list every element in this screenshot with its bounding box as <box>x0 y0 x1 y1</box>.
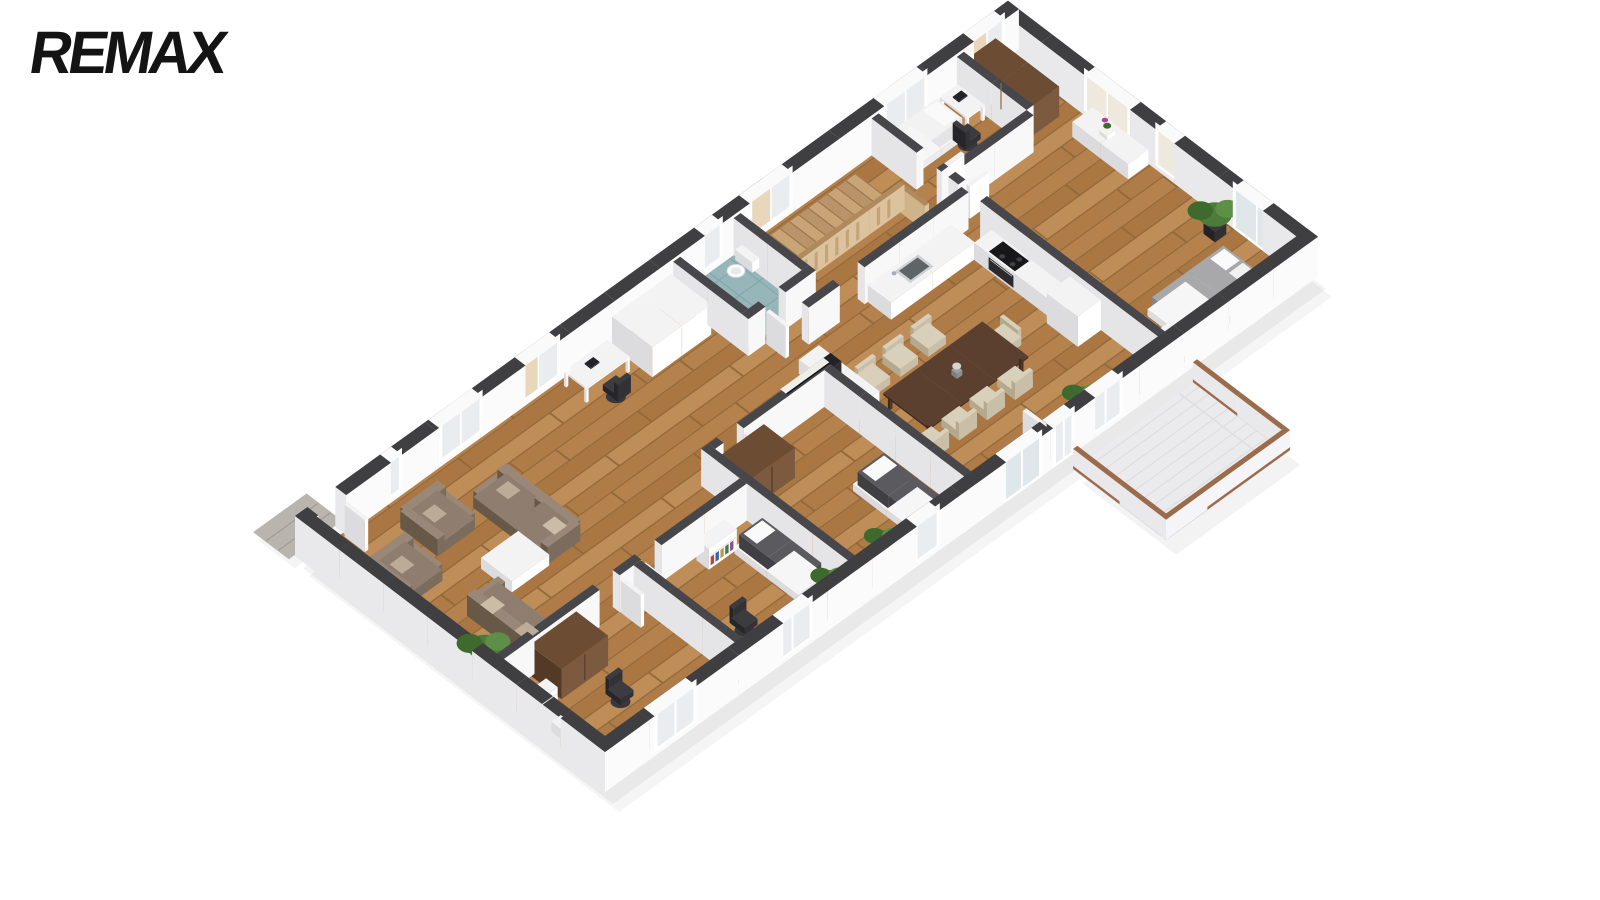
wall-dining-north <box>802 302 809 344</box>
desk-small-bedroom <box>980 107 982 122</box>
kitchen-counter-long <box>1016 257 1022 261</box>
exterior-wall-nw <box>335 487 346 535</box>
window-bedroom-b <box>792 614 794 650</box>
stair-railing <box>856 221 859 241</box>
wardrobe-master <box>1000 83 1001 110</box>
dresser-master <box>1102 118 1108 123</box>
table-centerpiece <box>952 363 961 370</box>
window-living-3 <box>538 355 540 389</box>
floor-plan-stage: REMAX <box>0 0 1600 900</box>
wall-bathroom-south <box>741 314 748 356</box>
wall-dining-north <box>858 262 865 304</box>
kitchen-counter <box>892 271 897 275</box>
stair-railing <box>825 244 828 264</box>
door-bedroom-a <box>641 593 644 628</box>
dining-chair-6 <box>984 401 987 421</box>
chair-small-bedroom <box>966 130 970 150</box>
office-desk <box>566 373 568 388</box>
office-desk <box>584 388 586 403</box>
window-small-bedroom <box>905 89 907 123</box>
stair-railing <box>835 236 838 256</box>
remax-logo: REMAX <box>25 18 229 87</box>
wardrobe-bedroom-a <box>584 654 585 681</box>
exterior-wall-sw <box>605 744 616 792</box>
window-living-2 <box>460 411 462 445</box>
door-master-terrace <box>1256 204 1258 244</box>
kitchen-counter-long <box>999 254 1005 258</box>
hall-closet <box>681 328 682 355</box>
door-dining-deck-slider <box>1021 448 1023 488</box>
dining-chair-5 <box>956 421 959 441</box>
deck-railing-se <box>1162 517 1166 540</box>
door-dining-deck <box>1063 418 1065 458</box>
office-desk-chair <box>614 382 618 402</box>
wall-small-bedroom-west <box>917 148 924 190</box>
toilet <box>731 267 742 274</box>
desk-small-bedroom <box>983 107 985 122</box>
stair-railing <box>877 206 880 226</box>
dining-chair-7 <box>1012 380 1015 400</box>
dresser-master <box>1103 123 1111 129</box>
window-bedroom-a <box>675 698 677 734</box>
office-desk <box>586 388 588 403</box>
window-dining <box>1105 388 1107 424</box>
office-desk <box>628 359 630 374</box>
stair-railing <box>887 199 890 219</box>
door-entry <box>365 518 368 553</box>
window-stairs <box>770 187 772 221</box>
plant-master <box>1188 201 1214 220</box>
floor-plan-3d-render <box>0 0 1600 900</box>
office-desk <box>564 373 566 388</box>
door-bathroom <box>786 324 789 359</box>
wardrobe-bedroom-c <box>772 466 773 493</box>
wall-bedrooms-south <box>613 570 620 612</box>
stair-railing <box>846 229 849 249</box>
kitchen-counter-long <box>1010 262 1016 266</box>
stair-railing <box>815 251 818 271</box>
